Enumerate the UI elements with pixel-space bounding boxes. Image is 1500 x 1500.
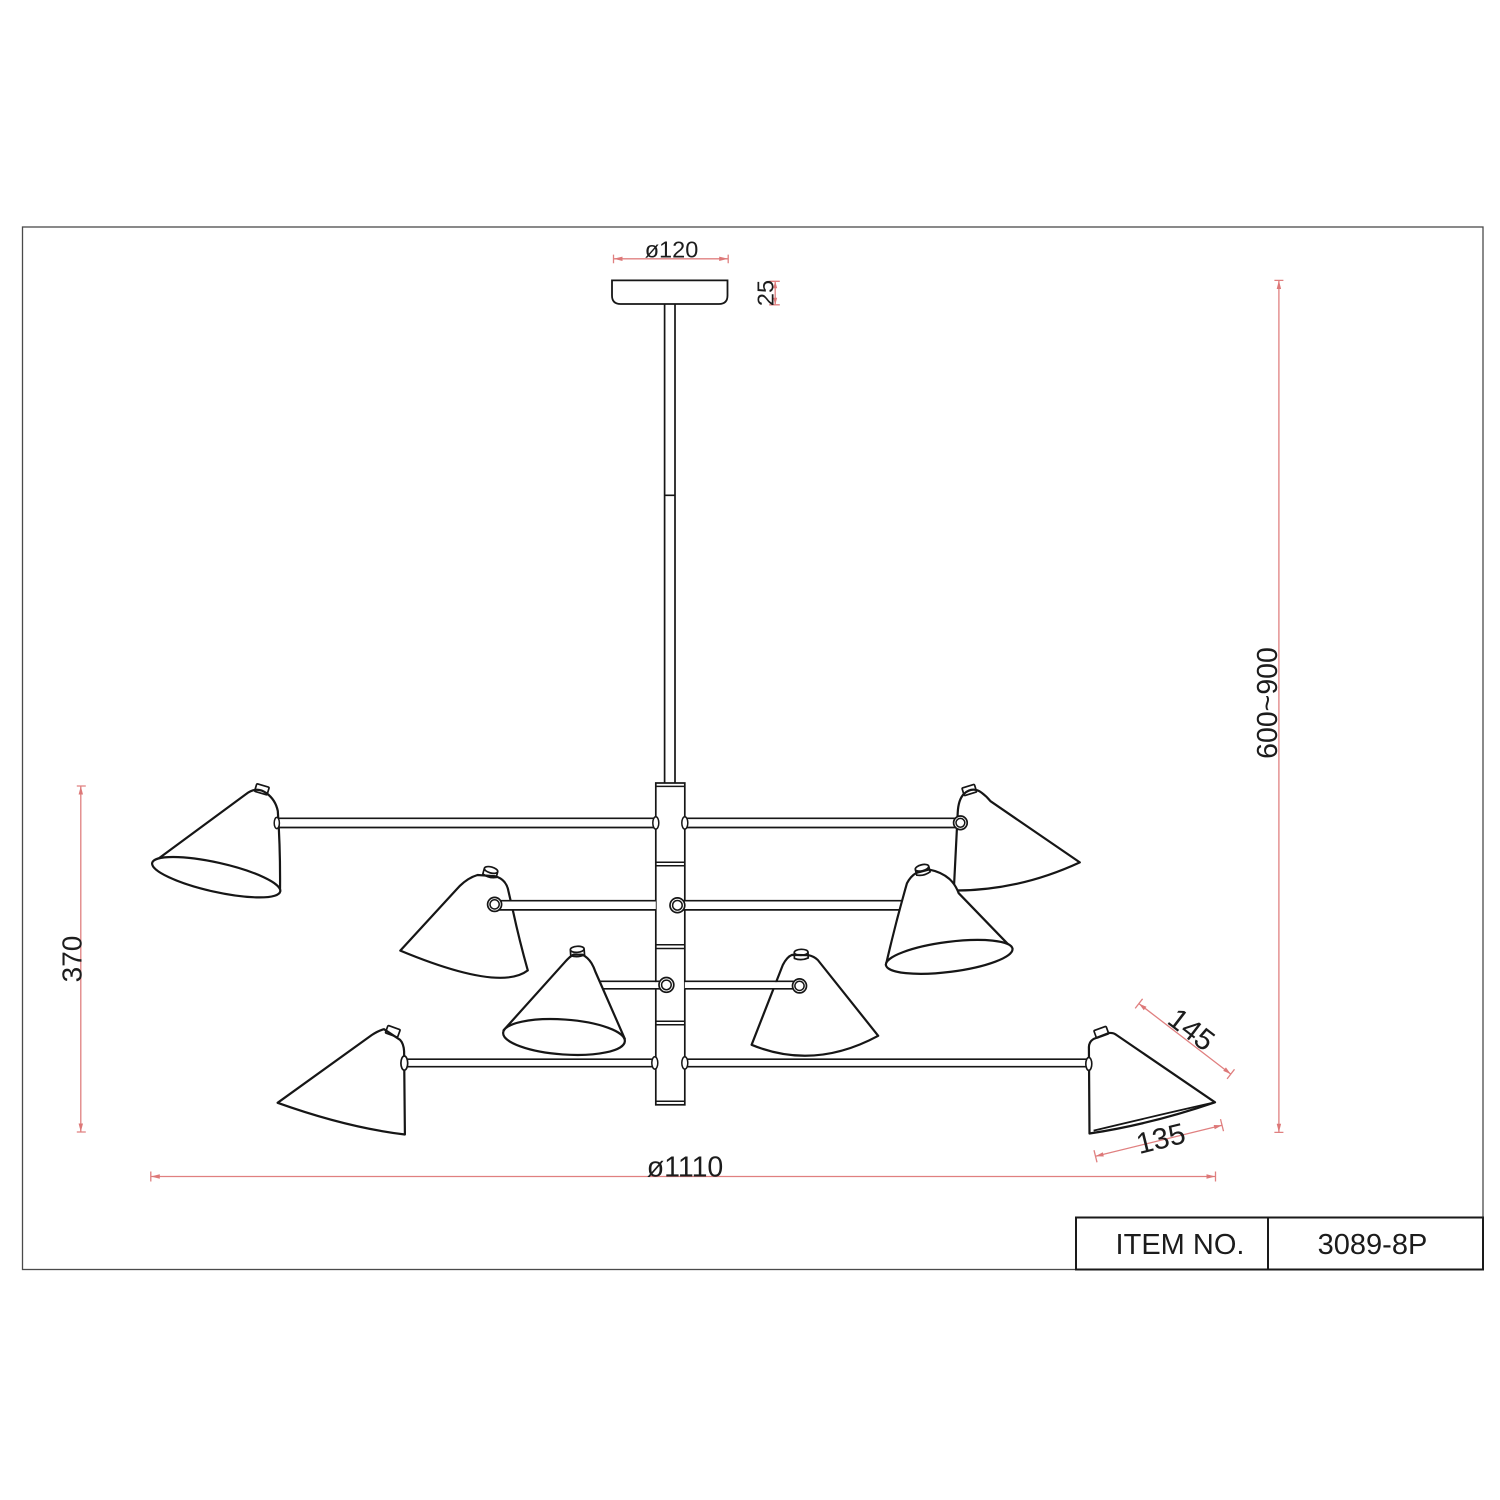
svg-text:ITEM NO.: ITEM NO. — [1116, 1229, 1245, 1261]
svg-text:25: 25 — [753, 280, 779, 306]
svg-text:ø120: ø120 — [645, 236, 699, 262]
svg-text:ø1110: ø1110 — [647, 1151, 724, 1183]
svg-text:370: 370 — [57, 936, 88, 983]
svg-text:3089-8P: 3089-8P — [1318, 1229, 1428, 1261]
svg-text:600~900: 600~900 — [1252, 647, 1284, 759]
